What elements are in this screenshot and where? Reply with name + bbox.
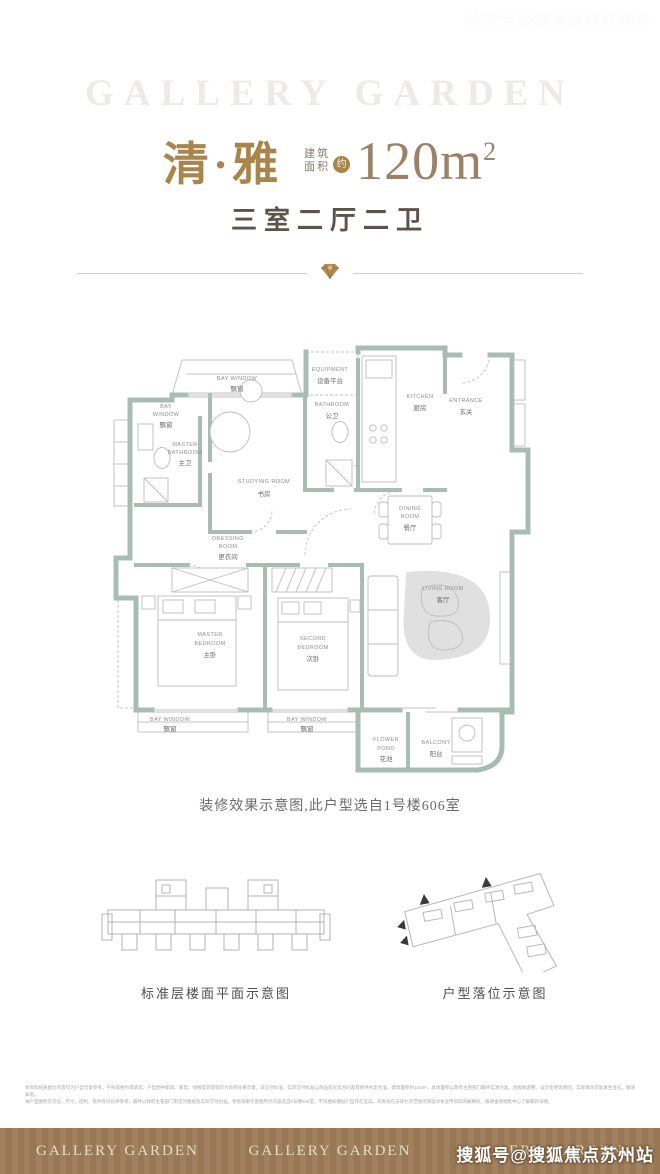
room-label-studying-room-en: STUDYING ROOM	[238, 479, 290, 485]
room-label-entrance-cn: 玄关	[460, 407, 474, 416]
room-label-balcony-cn: 阳台	[430, 749, 443, 758]
watermark-bottom: 搜狐号@搜狐焦点苏州站	[456, 1141, 654, 1166]
room-label-bay-window-top-cn: 飘窗	[231, 384, 244, 393]
area-superscript: 2	[483, 137, 497, 166]
area-prefix-line1: 建筑	[304, 148, 330, 161]
room-label-dressing-room-en2: ROOM	[219, 544, 238, 550]
divider-line-right	[353, 273, 583, 274]
room-label-master-bedroom-cn: 主卧	[204, 650, 218, 659]
diamond-gem-icon	[319, 263, 341, 284]
disclaimer-line2: 本户型图所示方位、尺寸、结构、管井等均仅供参考，最终以政府主管部门审定的图纸及实…	[25, 1098, 635, 1105]
area-value: 120m2	[356, 130, 497, 192]
floor-layout-drawing	[100, 872, 332, 972]
room-label-equipment-cn: 设备平台	[317, 376, 343, 385]
area-prefix: 建筑 面积	[304, 148, 330, 174]
room-label-master-bathroom-en1: MASTER	[172, 442, 197, 448]
floor-layout-diagram: 标准层楼面平面示意图	[96, 872, 336, 1002]
room-label-bay-window-bottom-left-en: BAY WINDOW	[150, 717, 191, 723]
room-label-master-bedroom-en2: BEDROOM	[194, 641, 225, 647]
unit-position-drawing	[395, 862, 595, 972]
plan-caption: 装修效果示意图,此户型选自1号楼606室	[0, 795, 660, 815]
floor-layout-caption: 标准层楼面平面示意图	[96, 983, 336, 1002]
room-label-studying-room-cn: 书房	[258, 489, 271, 498]
room-label-master-bedroom-en1: MASTER	[197, 632, 222, 638]
room-label-flower-pond-en2: POND	[377, 746, 395, 752]
room-label-dressing-room-en1: DRESSING	[212, 536, 244, 542]
room-label-equipment-en: EQUIPMENT	[312, 367, 349, 373]
room-label-balcony-en: BALCONY	[421, 740, 450, 746]
room-label-bay-window-left-en1: BAY	[160, 404, 172, 410]
room-label-flower-pond-cn: 花池	[380, 754, 394, 763]
area-number: 120m	[356, 131, 483, 191]
room-label-bay-window-top-en: BAY WINDOW	[217, 376, 258, 382]
brand-watermark: GALLERY GARDEN	[0, 72, 660, 115]
room-label-bay-window-bottom-mid-en: BAY WINDOW	[287, 717, 328, 723]
section-divider	[0, 262, 660, 284]
room-label-bathroom-cn: 公卫	[326, 412, 340, 420]
room-label-living-room-cn: 客厅	[437, 595, 451, 604]
room-label-dining-room-en1: DINING	[399, 506, 421, 512]
area-group: 建筑 面积 约 120m2	[304, 130, 497, 192]
floor-plan: BAY WINDOW 飘窗 EQUIPMENT 设备平台 BATHROOM 公卫…	[100, 300, 560, 800]
room-label-entrance-en: ENTRANCE	[449, 398, 482, 404]
footer-logo-left: GALLERY GARDEN	[36, 1143, 199, 1160]
room-label-kitchen-cn: 厨房	[414, 403, 427, 412]
room-label-master-bathroom-cn: 主卫	[179, 458, 193, 467]
layout-summary: 三室二厅二卫	[0, 200, 660, 237]
room-label-kitchen-en: KITCHEN	[407, 394, 434, 400]
room-label-bay-window-left-cn: 飘窗	[160, 420, 173, 429]
room-label-second-bedroom-en1: SECOND	[300, 636, 326, 642]
divider-line-left	[77, 273, 307, 274]
room-label-dining-room-cn: 餐厅	[404, 523, 418, 532]
poster-page: 搜狐号@搜狐焦点苏州站 GALLERY GARDEN 清·雅 建筑 面积 约 1…	[0, 0, 660, 1174]
room-label-living-room-en: LIVING ROOM	[422, 586, 463, 592]
room-label-bathroom-en: BATHROOM	[315, 402, 350, 408]
unit-position-caption: 户型落位示意图	[390, 983, 600, 1002]
room-label-bay-window-bottom-mid-cn: 飘窗	[301, 724, 314, 733]
area-prefix-line2: 面积	[304, 161, 330, 174]
unit-position-diagram: 户型落位示意图	[390, 862, 600, 1002]
watermark-top: 搜狐号@搜狐焦点苏州站	[465, 6, 652, 30]
room-label-dressing-room-cn: 更衣间	[218, 552, 238, 561]
room-label-bay-window-bottom-left-cn: 飘窗	[164, 724, 177, 733]
footer-logo-center: GALLERY GARDEN	[249, 1143, 412, 1160]
room-label-dining-room-en2: ROOM	[401, 514, 420, 520]
room-label-second-bedroom-cn: 次卧	[307, 654, 321, 663]
room-label-flower-pond-en1: FLOWER	[373, 737, 399, 743]
disclaimer-text: 本资料相关图文内容仅为户型示意参考，不构成要约或承诺。户型图中家具、家电、绿植及…	[25, 1084, 635, 1105]
room-label-second-bedroom-en2: BEDROOM	[297, 645, 328, 651]
room-label-master-bathroom-en2: BATHROOM	[168, 450, 203, 456]
unit-name: 清·雅	[163, 128, 282, 194]
approx-badge: 约	[333, 156, 350, 173]
disclaimer-line1: 本资料相关图文内容仅为户型示意参考，不构成要约或承诺。户型图中家具、家电、绿植及…	[25, 1084, 635, 1098]
title-row: 清·雅 建筑 面积 约 120m2	[0, 128, 660, 194]
room-label-bay-window-left-en2: WINDOW	[153, 412, 180, 418]
